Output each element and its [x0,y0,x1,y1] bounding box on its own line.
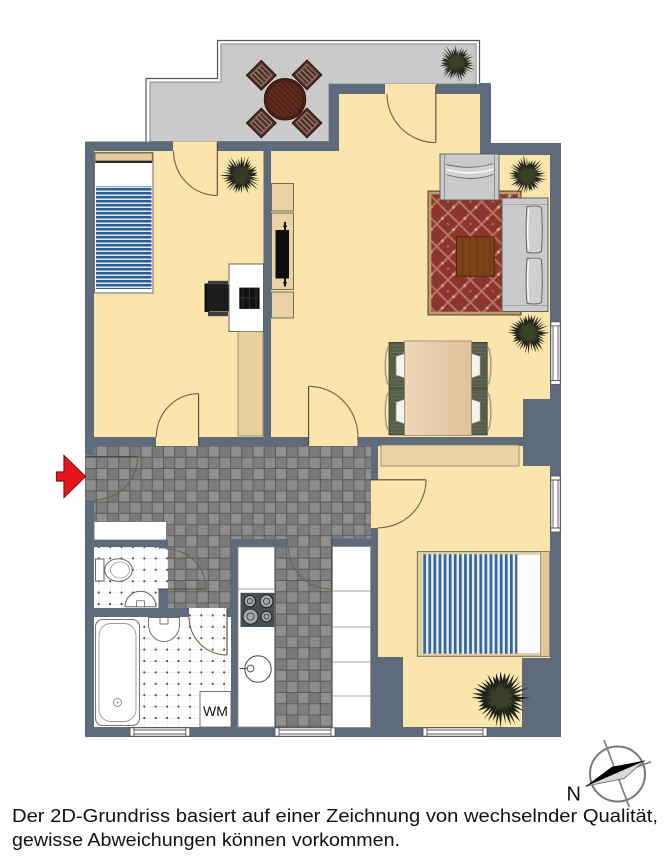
svg-text:N: N [567,784,581,806]
svg-text:WM: WM [203,703,228,719]
svg-text:Der 2D-Grundriss basiert auf e: Der 2D-Grundriss basiert auf einer Zeich… [12,805,658,826]
svg-text:gewisse Abweichungen können vo: gewisse Abweichungen können vorkommen. [12,829,400,850]
